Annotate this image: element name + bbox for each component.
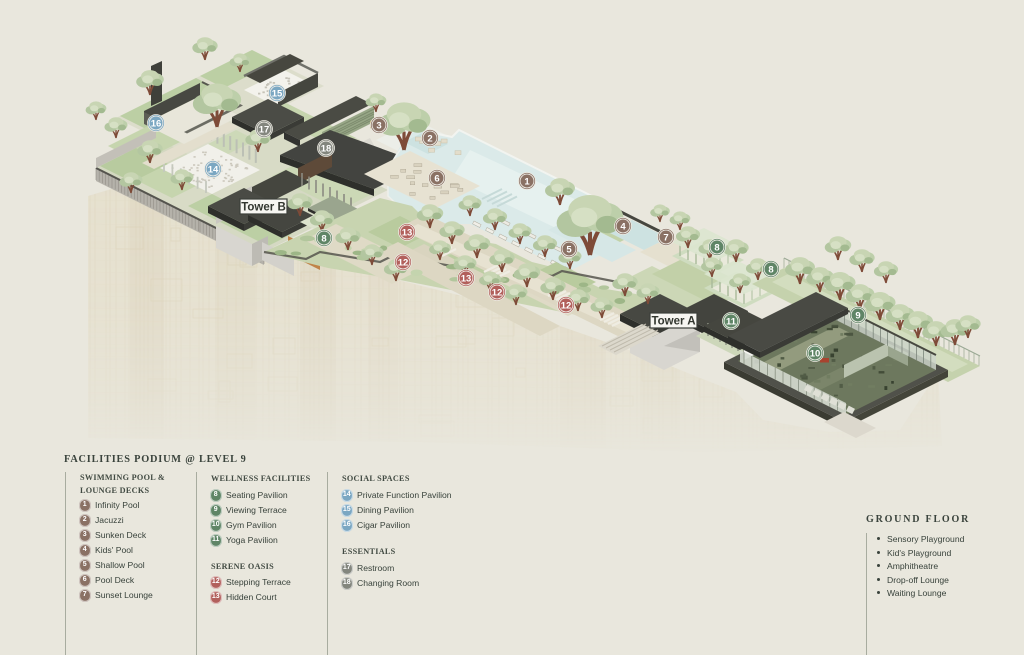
svg-text:Tower A: Tower A	[651, 316, 695, 328]
svg-text:13: 13	[461, 273, 472, 284]
svg-text:Tower B: Tower B	[241, 202, 286, 214]
svg-text:14: 14	[208, 164, 219, 175]
svg-text:13: 13	[402, 227, 413, 238]
svg-text:12: 12	[561, 300, 572, 311]
svg-text:10: 10	[810, 348, 821, 359]
svg-text:6: 6	[434, 173, 439, 184]
svg-text:12: 12	[398, 257, 409, 268]
svg-text:17: 17	[259, 124, 270, 135]
svg-text:4: 4	[620, 221, 626, 232]
svg-text:8: 8	[321, 233, 326, 244]
svg-text:12: 12	[492, 287, 503, 298]
svg-text:7: 7	[663, 232, 668, 243]
svg-text:5: 5	[566, 244, 572, 255]
svg-text:9: 9	[855, 310, 860, 321]
svg-text:8: 8	[714, 242, 719, 253]
svg-text:18: 18	[321, 143, 332, 154]
svg-text:3: 3	[376, 120, 381, 131]
svg-text:11: 11	[726, 316, 737, 327]
svg-text:1: 1	[524, 176, 530, 187]
svg-text:15: 15	[272, 88, 283, 99]
svg-text:16: 16	[151, 118, 162, 129]
svg-text:2: 2	[427, 133, 432, 144]
svg-text:8: 8	[768, 264, 773, 275]
